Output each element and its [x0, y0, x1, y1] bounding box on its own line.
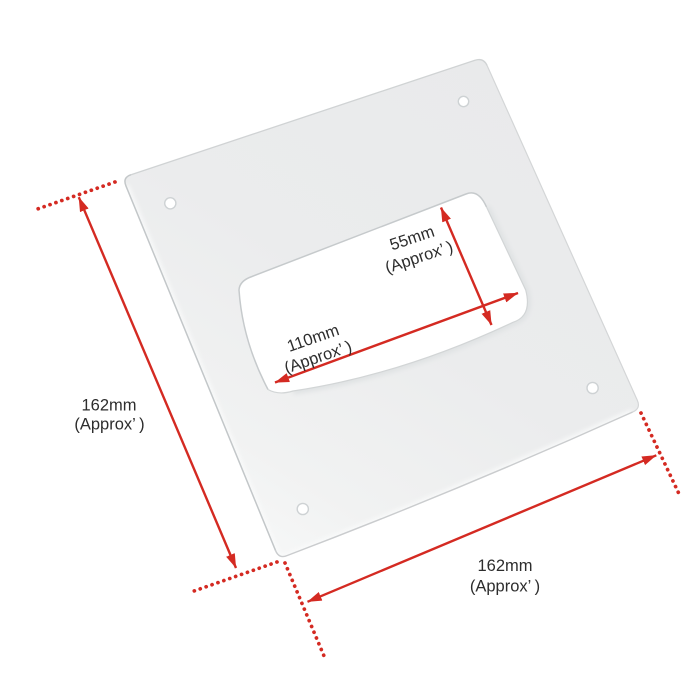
- svg-text:(Approx’ ): (Approx’ ): [470, 578, 540, 596]
- svg-text:162mm: 162mm: [81, 397, 136, 415]
- svg-text:162mm: 162mm: [477, 557, 532, 575]
- svg-text:(Approx’ ): (Approx’ ): [74, 416, 144, 434]
